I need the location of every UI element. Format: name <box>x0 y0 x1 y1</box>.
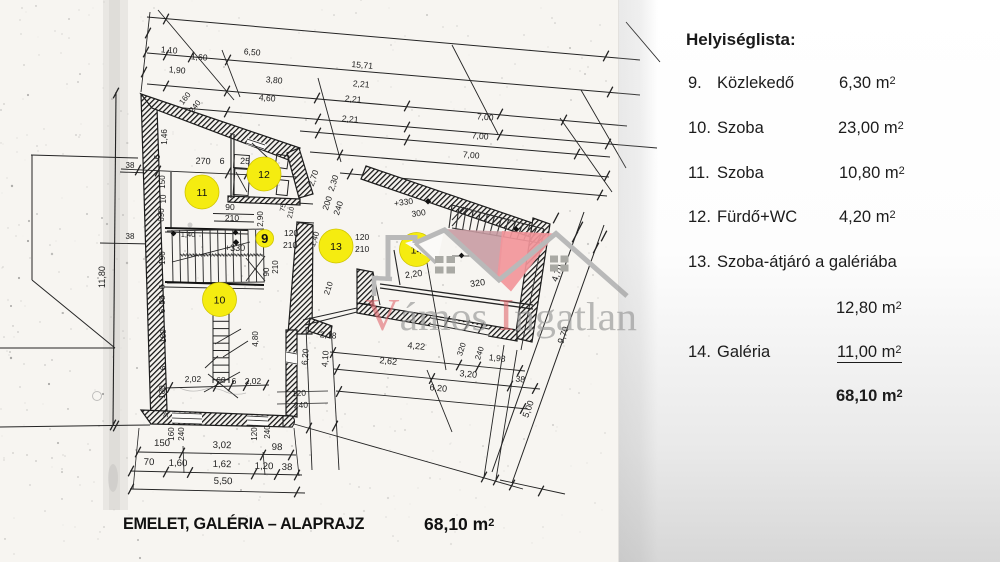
svg-text:2,21: 2,21 <box>341 113 359 124</box>
svg-text:90: 90 <box>225 202 235 212</box>
svg-text:1,10: 1,10 <box>160 44 178 55</box>
svg-text:2,02: 2,02 <box>245 376 262 386</box>
svg-text:120: 120 <box>292 388 307 398</box>
svg-text:3,20: 3,20 <box>459 368 477 380</box>
svg-text:7,00: 7,00 <box>462 149 480 160</box>
svg-text:2,02: 2,02 <box>185 374 202 384</box>
svg-text:10: 10 <box>159 194 168 203</box>
svg-text:38: 38 <box>126 161 135 170</box>
svg-text:270: 270 <box>195 156 210 167</box>
svg-text:210: 210 <box>225 213 239 223</box>
svg-text:4,60: 4,60 <box>258 92 276 103</box>
svg-text:9: 9 <box>261 231 268 246</box>
svg-text:Vámos Ingatlan: Vámos Ingatlan <box>365 289 637 340</box>
svg-text:98: 98 <box>158 295 167 304</box>
svg-text:5,50: 5,50 <box>214 476 233 487</box>
svg-text:12: 12 <box>258 169 270 181</box>
svg-text:300: 300 <box>411 207 427 219</box>
svg-text:210: 210 <box>283 240 297 250</box>
svg-text:6: 6 <box>153 154 162 159</box>
svg-text:70: 70 <box>144 457 155 468</box>
svg-text:1,46: 1,46 <box>160 129 169 145</box>
svg-text:38: 38 <box>126 232 135 241</box>
svg-text:6: 6 <box>231 376 236 386</box>
svg-text:2,21: 2,21 <box>344 93 362 104</box>
svg-text:6,20: 6,20 <box>299 348 310 366</box>
svg-text:690: 690 <box>157 208 166 222</box>
svg-text:6: 6 <box>158 284 167 289</box>
svg-text:6: 6 <box>159 365 168 370</box>
svg-text:4,80: 4,80 <box>251 331 260 347</box>
svg-text:38: 38 <box>163 410 170 418</box>
svg-text:210: 210 <box>355 244 369 254</box>
svg-text:6,20: 6,20 <box>429 382 447 394</box>
svg-text:1,90: 1,90 <box>168 64 186 75</box>
svg-text:6: 6 <box>219 156 224 166</box>
svg-text:10: 10 <box>214 294 226 306</box>
svg-text:3,02: 3,02 <box>213 440 232 451</box>
svg-text:3,80: 3,80 <box>265 74 283 85</box>
svg-text:240: 240 <box>177 427 186 441</box>
svg-text:180: 180 <box>158 385 167 399</box>
svg-text:320: 320 <box>469 277 485 289</box>
svg-text:15,71: 15,71 <box>351 59 374 71</box>
svg-text:4,22: 4,22 <box>407 340 425 352</box>
svg-text:98: 98 <box>272 442 283 453</box>
svg-text:2,62: 2,62 <box>379 355 397 367</box>
svg-text:7,00: 7,00 <box>471 130 489 141</box>
svg-text:6,50: 6,50 <box>243 46 261 57</box>
svg-text:1,60: 1,60 <box>169 458 188 469</box>
svg-text:150: 150 <box>154 438 170 449</box>
svg-text:1,62: 1,62 <box>213 459 232 470</box>
svg-text:2,21: 2,21 <box>352 78 370 89</box>
svg-text:1,40: 1,40 <box>181 230 196 239</box>
svg-text:120: 120 <box>284 228 298 238</box>
svg-text:90: 90 <box>262 267 271 276</box>
svg-text:2,18: 2,18 <box>319 329 337 340</box>
svg-text:25: 25 <box>240 156 250 166</box>
svg-text:11: 11 <box>197 187 208 199</box>
svg-text:2,90: 2,90 <box>256 211 265 227</box>
svg-text:60: 60 <box>216 375 226 385</box>
svg-text:13: 13 <box>330 241 342 253</box>
svg-text:4,10: 4,10 <box>319 350 330 368</box>
svg-text:180: 180 <box>159 329 168 343</box>
svg-text:240: 240 <box>294 400 309 410</box>
svg-text:11,80: 11,80 <box>97 266 107 288</box>
svg-text:120: 120 <box>355 232 369 242</box>
svg-text:240: 240 <box>263 425 272 439</box>
svg-text:1,60: 1,60 <box>190 51 208 62</box>
svg-text:190: 190 <box>158 251 167 265</box>
svg-text:38: 38 <box>282 462 293 473</box>
svg-text:6: 6 <box>158 308 167 313</box>
svg-text:150: 150 <box>158 175 167 189</box>
svg-text:1,98: 1,98 <box>488 352 506 364</box>
svg-text:38: 38 <box>515 374 526 385</box>
svg-text:120: 120 <box>250 427 259 441</box>
svg-text:210: 210 <box>271 260 280 274</box>
